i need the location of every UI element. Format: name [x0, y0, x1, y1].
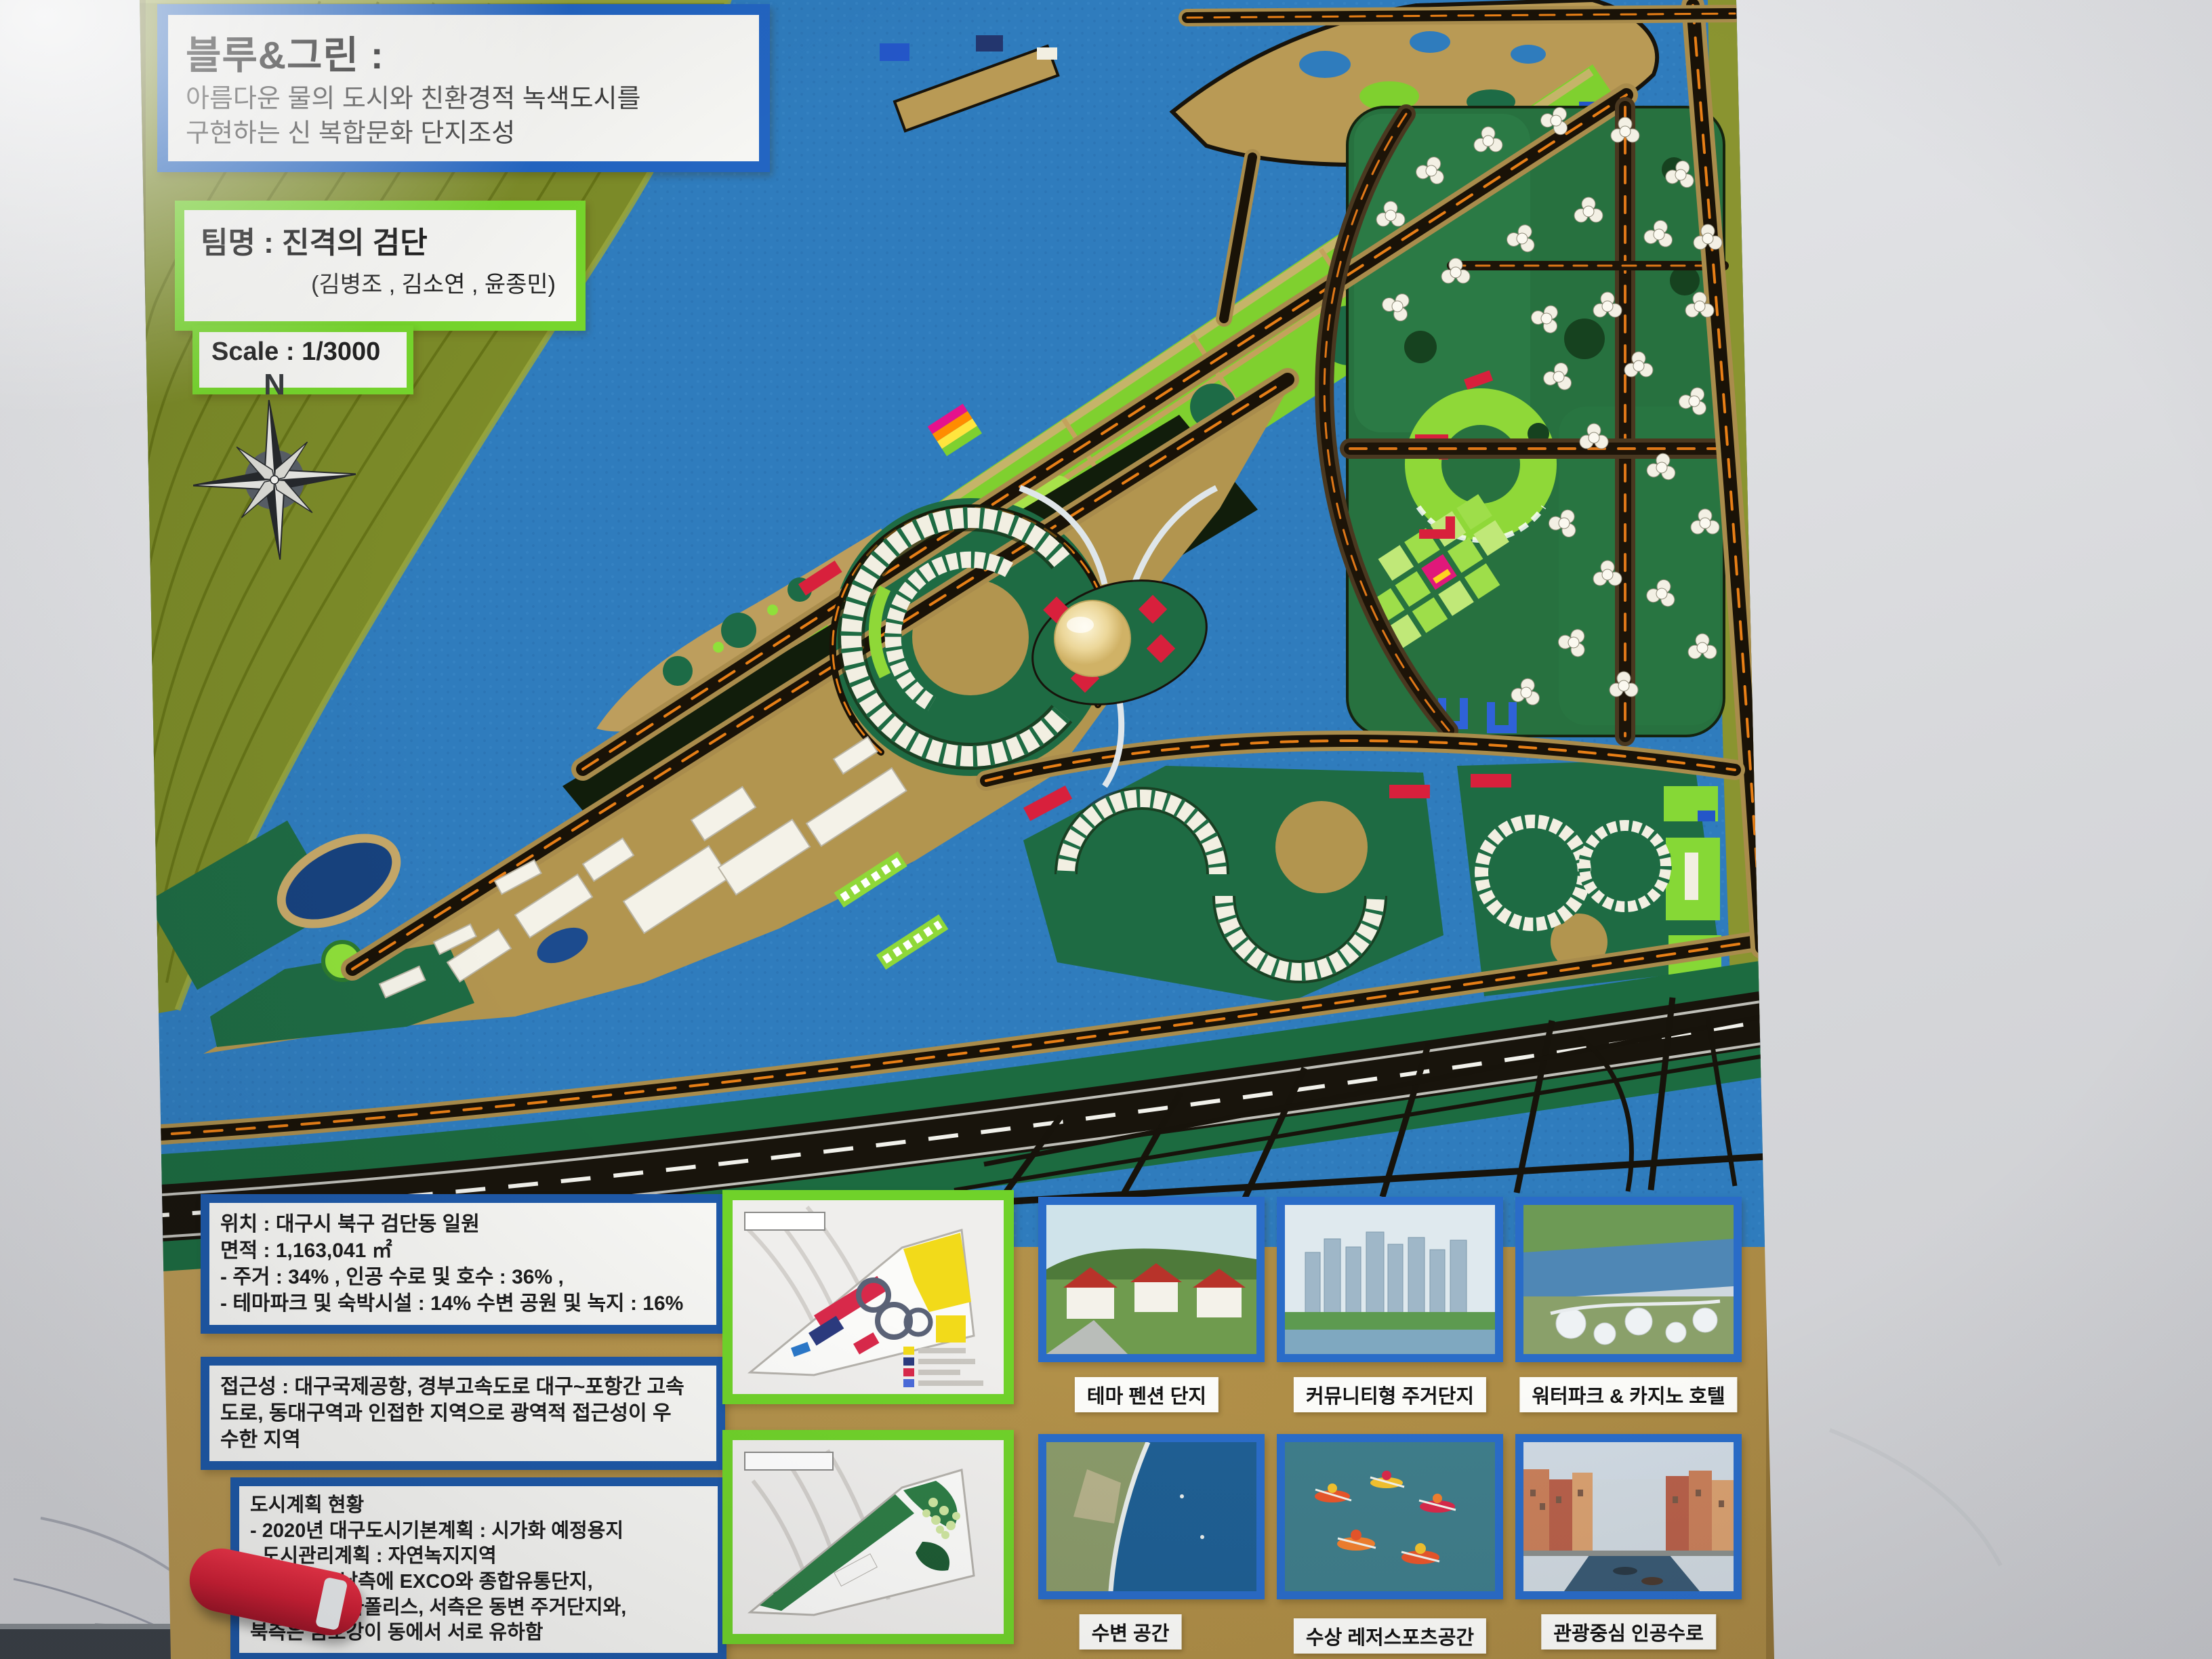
photo-tourism-canal [1515, 1434, 1742, 1599]
caption-community-housing: 커뮤니티형 주거단지 [1294, 1377, 1486, 1412]
team-box: 팀명 : 진격의 검단 (김병조 , 김소연 , 윤종민) [175, 201, 586, 331]
info-line: 접근성 : 대구국제공항, 경부고속도로 대구~포항간 고속 [209, 1374, 716, 1400]
project-subtitle-line1: 아름다운 물의 도시와 친환경적 녹색도시를 [168, 81, 759, 116]
info-line: - 2020년 대구도시기본계획 : 시가화 예정용지 [239, 1519, 718, 1544]
landuse-inset-art [733, 1200, 1004, 1394]
caption-waterpark-casino: 워터파크 & 카지노 호텔 [1519, 1377, 1737, 1412]
photo-community-housing [1277, 1197, 1503, 1362]
accessibility-info-box: 접근성 : 대구국제공항, 경부고속도로 대구~포항간 고속 도로, 동대구역과… [201, 1357, 725, 1470]
photo-of-model-board: 블루&그린 : 아름다운 물의 도시와 친환경적 녹색도시를 구현하는 신 복합… [0, 0, 2212, 1659]
compass-rose: N [193, 366, 356, 562]
greenspace-inset-art [733, 1440, 1004, 1634]
project-subtitle-line2: 구현하는 신 복합문화 단지조성 [168, 116, 759, 150]
caption-water-leisure: 수상 레저스포츠공간 [1294, 1618, 1486, 1654]
team-name: 팀명 : 진격의 검단 [184, 210, 576, 263]
info-line: 도로, 동대구역과 인접한 지역으로 광역적 접근성이 우 [209, 1400, 716, 1427]
title-box: 블루&그린 : 아름다운 물의 도시와 친환경적 녹색도시를 구현하는 신 복합… [157, 4, 770, 172]
team-members: (김병조 , 김소연 , 윤종민) [184, 263, 576, 306]
info-line: - 도시관리계획 : 자연녹지지역 [239, 1544, 718, 1570]
photo-theme-pension [1038, 1197, 1265, 1362]
photo-waterpark-casino-hotel [1515, 1197, 1742, 1362]
marker-cap [315, 1577, 348, 1631]
photo-waterfront-space [1038, 1434, 1265, 1599]
caption-tourism-canal: 관광중심 인공수로 [1541, 1614, 1716, 1650]
caption-waterfront: 수변 공간 [1080, 1614, 1182, 1650]
location-info-box: 위치 : 대구시 북구 검단동 일원 면적 : 1,163,041 ㎡ - 주거… [201, 1194, 725, 1334]
photo-water-leisure-sports [1277, 1434, 1503, 1599]
greenspace-inset-diagram [722, 1430, 1014, 1644]
info-line: - 주거 : 34% , 인공 수로 및 호수 : 36% , [209, 1264, 716, 1290]
caption-theme-pension: 테마 펜션 단지 [1075, 1377, 1218, 1412]
info-line: - 테마파크 및 숙박시설 : 14% 수변 공원 및 녹지 : 16% [209, 1290, 716, 1317]
residential-superblocks [1347, 107, 1724, 736]
info-line: 위치 : 대구시 북구 검단동 일원 [209, 1211, 716, 1237]
info-line: 수한 지역 [209, 1427, 716, 1453]
info-line: 면적 : 1,163,041 ㎡ [209, 1237, 716, 1264]
project-title: 블루&그린 : [168, 15, 759, 81]
compass-north-label: N [264, 368, 285, 401]
info-line: 도시계획 현황 [239, 1493, 718, 1519]
landuse-inset-diagram [722, 1190, 1014, 1404]
